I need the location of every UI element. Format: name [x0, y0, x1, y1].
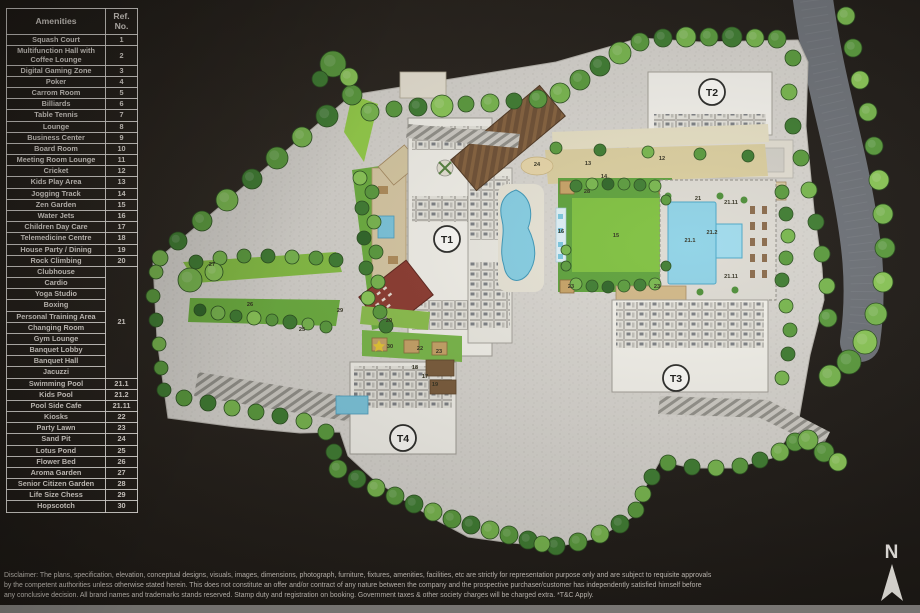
map-ref-label: 21.1 — [685, 238, 696, 244]
amenity-name: Hopscotch — [7, 501, 106, 512]
amenity-row: Table Tennis7 — [7, 110, 138, 121]
tree-icon — [506, 93, 522, 109]
amenity-row: Billiards6 — [7, 99, 138, 110]
amenity-ref: 15 — [106, 199, 138, 210]
tree-icon — [200, 395, 216, 411]
map-ref-label: 28 — [584, 189, 590, 195]
tree-icon — [534, 536, 550, 552]
disclaimer-line-3: any conclusive decision. All brand names… — [4, 591, 810, 601]
amenity-ref: 6 — [106, 99, 138, 110]
tree-icon — [779, 299, 793, 313]
tree-icon — [561, 245, 571, 255]
amenity-name: Banquet Lobby — [7, 345, 106, 356]
tree-icon — [320, 321, 332, 333]
amenity-row: Telemedicine Centre18 — [7, 233, 138, 244]
entrance-pavilion — [400, 72, 446, 98]
north-compass: N — [870, 543, 914, 605]
amenity-ref: 21.11 — [106, 400, 138, 411]
tree-icon — [272, 408, 288, 424]
tree-icon — [793, 150, 809, 166]
amenity-ref: 14 — [106, 188, 138, 199]
tree-icon — [386, 101, 402, 117]
tree-icon — [285, 250, 299, 264]
tree-icon — [373, 305, 387, 319]
amenity-ref: 11 — [106, 155, 138, 166]
amenity-ref: 13 — [106, 177, 138, 188]
amenity-ref-group: 21 — [106, 266, 138, 378]
amenity-row: House Party / Dining19 — [7, 244, 138, 255]
tree-icon — [642, 146, 654, 158]
map-ref-label: 23 — [436, 349, 442, 355]
tree-icon — [661, 261, 671, 271]
amenities-table: Amenities Ref. No. Squash Court1Multifun… — [6, 8, 138, 513]
north-letter: N — [870, 543, 914, 562]
tree-icon — [152, 337, 166, 351]
site-plan-photo: 1213142428161523232121.121.221.1121.1120… — [0, 0, 920, 613]
tree-icon — [644, 469, 660, 485]
tree-icon — [684, 459, 700, 475]
tree-icon — [775, 185, 789, 199]
tree-icon — [550, 142, 562, 154]
amenity-name: Rock Climbing — [7, 255, 106, 266]
t4-annex — [426, 360, 454, 376]
amenity-name: Jogging Track — [7, 188, 106, 199]
amenity-ref: 8 — [106, 121, 138, 132]
photo-edge-strip — [0, 605, 920, 613]
amenity-ref: 24 — [106, 434, 138, 445]
tree-icon — [561, 261, 571, 271]
tree-icon — [248, 404, 264, 420]
amenity-name: Pool Side Cafe — [7, 400, 106, 411]
map-ref-label: 13 — [585, 161, 591, 167]
tree-icon — [149, 313, 163, 327]
north-arrow-icon — [876, 563, 908, 605]
amenity-name: House Party / Dining — [7, 244, 106, 255]
amenity-row: Lotus Pond25 — [7, 445, 138, 456]
amenity-name: Lotus Pond — [7, 445, 106, 456]
tree-icon — [801, 182, 817, 198]
map-ref-label: 14 — [601, 174, 608, 180]
tree-icon — [783, 323, 797, 337]
tree-icon — [224, 400, 240, 416]
tower-label-t1: T1 — [441, 234, 453, 246]
tree-icon — [594, 144, 606, 156]
tree-icon — [283, 315, 297, 329]
amenity-name: Flower Bed — [7, 456, 106, 467]
amenity-ref: 16 — [106, 211, 138, 222]
disclaimer-line-2: by the competent authorities unless othe… — [4, 581, 810, 591]
amenity-row: Board Room10 — [7, 143, 138, 154]
tree-icon — [157, 383, 171, 397]
amenity-row: Sand Pit24 — [7, 434, 138, 445]
amenity-ref: 1 — [106, 35, 138, 46]
tree-icon — [357, 231, 371, 245]
amenity-row: Flower Bed26 — [7, 456, 138, 467]
t4-pool — [336, 396, 368, 414]
tree-icon — [361, 291, 375, 305]
amenity-row: Meeting Room Lounge11 — [7, 155, 138, 166]
tree-icon — [586, 280, 598, 292]
shade-pavilion — [437, 160, 453, 176]
amenity-name: Squash Court — [7, 35, 106, 46]
map-ref-label: 24 — [534, 162, 541, 168]
map-ref-label: 16 — [558, 229, 564, 235]
amenity-name: Poker — [7, 76, 106, 87]
amenity-row: Digital Gaming Zone3 — [7, 65, 138, 76]
tree-icon — [752, 452, 768, 468]
tree-icon — [618, 280, 630, 292]
amenity-name: Sand Pit — [7, 434, 106, 445]
tree-icon — [618, 178, 630, 190]
amenity-name: Cardio — [7, 278, 106, 289]
tree-icon — [634, 179, 646, 191]
amenity-row: Kiosks22 — [7, 412, 138, 423]
map-ref-label: 19 — [432, 382, 438, 388]
amenity-row: Cricket12 — [7, 166, 138, 177]
tree-icon — [635, 486, 651, 502]
map-ref-label: 29 — [337, 308, 343, 314]
amenity-ref: 22 — [106, 412, 138, 423]
amenity-name: Kiosks — [7, 412, 106, 423]
amenities-body: Squash Court1Multifunction Hall with Cof… — [7, 35, 138, 512]
tree-icon — [353, 171, 367, 185]
tree-icon — [649, 180, 661, 192]
tree-icon — [708, 460, 724, 476]
map-ref-label: 21.11 — [724, 200, 738, 206]
tree-icon — [814, 246, 830, 262]
map-ref-label: 26 — [247, 302, 253, 308]
amenity-name: Lounge — [7, 121, 106, 132]
tower-label-t2: T2 — [706, 87, 718, 99]
map-ref-label: 22 — [417, 346, 423, 352]
amenity-name: Kids Pool — [7, 389, 106, 400]
amenity-name: Aroma Garden — [7, 467, 106, 478]
tower-label-t3: T3 — [670, 373, 682, 385]
amenity-ref: 23 — [106, 423, 138, 434]
tree-icon — [570, 180, 582, 192]
amenity-ref: 29 — [106, 490, 138, 501]
map-ref-label: 12 — [659, 156, 665, 162]
amenity-row: Clubhouse21 — [7, 266, 138, 277]
amenity-name: Billiards — [7, 99, 106, 110]
amenity-name: Gym Lounge — [7, 333, 106, 344]
tree-icon — [152, 250, 168, 266]
tree-icon — [808, 214, 824, 230]
amenity-row: Multifunction Hall with Coffee Lounge2 — [7, 46, 138, 65]
amenity-row: Kids Play Area13 — [7, 177, 138, 188]
tree-icon — [149, 265, 163, 279]
tree-icon — [194, 304, 206, 316]
amenity-name: Changing Room — [7, 322, 106, 333]
amenity-row: Kids Pool21.2 — [7, 389, 138, 400]
amenity-name: Boxing — [7, 300, 106, 311]
kids-pool — [716, 224, 742, 258]
amenity-row: Life Size Chess29 — [7, 490, 138, 501]
tree-icon — [261, 249, 275, 263]
amenity-ref: 21.2 — [106, 389, 138, 400]
tree-icon — [602, 281, 614, 293]
tree-icon — [176, 390, 192, 406]
amenity-ref: 18 — [106, 233, 138, 244]
amenity-ref: 2 — [106, 46, 138, 65]
tree-icon — [779, 207, 793, 221]
tree-icon — [312, 71, 328, 87]
tree-icon — [329, 253, 343, 267]
tree-icon — [369, 245, 383, 259]
amenity-row: Squash Court1 — [7, 35, 138, 46]
tree-icon — [775, 371, 789, 385]
amenities-header-row: Amenities Ref. No. — [7, 9, 138, 35]
amenity-name: Kids Play Area — [7, 177, 106, 188]
amenity-ref: 10 — [106, 143, 138, 154]
map-ref-label: 30 — [387, 344, 393, 350]
amenity-row: Poker4 — [7, 76, 138, 87]
tree-icon — [266, 314, 278, 326]
ref-no-header: Ref. No. — [106, 9, 138, 35]
amenity-name: Carrom Room — [7, 88, 106, 99]
amenity-ref: 9 — [106, 132, 138, 143]
amenity-name: Digital Gaming Zone — [7, 65, 106, 76]
tree-icon — [819, 278, 835, 294]
amenity-ref: 4 — [106, 76, 138, 87]
amenity-ref: 7 — [106, 110, 138, 121]
amenity-name: Children Day Care — [7, 222, 106, 233]
tower-label-t4: T4 — [397, 433, 409, 445]
map-ref-label: 23 — [568, 284, 574, 290]
tree-icon — [189, 255, 203, 269]
tree-icon — [628, 502, 644, 518]
amenities-header: Amenities — [7, 9, 106, 35]
amenity-row: Hopscotch30 — [7, 501, 138, 512]
tree-icon — [781, 229, 795, 243]
tree-icon — [371, 275, 385, 289]
tree-icon — [355, 201, 369, 215]
amenity-ref: 19 — [106, 244, 138, 255]
amenity-row: Swimming Pool21.1 — [7, 378, 138, 389]
amenity-ref: 25 — [106, 445, 138, 456]
amenity-ref: 28 — [106, 479, 138, 490]
amenity-ref: 5 — [106, 88, 138, 99]
amenity-name: Personal Training Area — [7, 311, 106, 322]
amenity-name: Telemedicine Centre — [7, 233, 106, 244]
amenity-name: Swimming Pool — [7, 378, 106, 389]
tree-icon — [458, 96, 474, 112]
map-ref-label: 17 — [422, 374, 428, 380]
tree-icon — [318, 424, 334, 440]
tree-icon — [247, 311, 261, 325]
amenity-row: Carrom Room5 — [7, 88, 138, 99]
amenity-name: Business Center — [7, 132, 106, 143]
tree-icon — [211, 306, 225, 320]
map-ref-label: 21 — [695, 196, 701, 202]
amenity-row: Zen Garden15 — [7, 199, 138, 210]
amenity-ref: 3 — [106, 65, 138, 76]
tree-icon — [359, 261, 373, 275]
amenity-ref: 27 — [106, 467, 138, 478]
tree-icon — [367, 215, 381, 229]
amenity-ref: 12 — [106, 166, 138, 177]
amenity-name: Meeting Room Lounge — [7, 155, 106, 166]
amenity-row: Children Day Care17 — [7, 222, 138, 233]
amenity-name: Board Room — [7, 143, 106, 154]
map-ref-label: 23 — [654, 284, 660, 290]
tree-icon — [154, 361, 168, 375]
amenity-row: Water Jets16 — [7, 211, 138, 222]
tree-icon — [785, 118, 801, 134]
amenity-ref: 21.1 — [106, 378, 138, 389]
map-ref-label: 27 — [209, 262, 215, 268]
amenity-name: Senior Citizen Garden — [7, 479, 106, 490]
amenity-row: Lounge8 — [7, 121, 138, 132]
amenity-name: Yoga Studio — [7, 289, 106, 300]
tree-icon — [732, 458, 748, 474]
amenity-row: Business Center9 — [7, 132, 138, 143]
map-ref-label: 25 — [299, 327, 305, 333]
site-plan-map: 1213142428161523232121.121.221.1121.1120… — [0, 0, 920, 613]
amenity-row: Aroma Garden27 — [7, 467, 138, 478]
amenity-name: Water Jets — [7, 211, 106, 222]
amenity-row: Jogging Track14 — [7, 188, 138, 199]
disclaimer-text: Disclaimer: The plans, specification, el… — [4, 571, 810, 602]
tree-icon — [661, 195, 671, 205]
amenity-name: Clubhouse — [7, 266, 106, 277]
tree-icon — [775, 273, 789, 287]
map-ref-label: 20 — [386, 318, 392, 324]
amenity-name: Table Tennis — [7, 110, 106, 121]
amenity-ref: 26 — [106, 456, 138, 467]
amenity-name: Life Size Chess — [7, 490, 106, 501]
tree-icon — [309, 251, 323, 265]
tree-icon — [237, 249, 251, 263]
amenity-ref: 20 — [106, 255, 138, 266]
tree-icon — [779, 251, 793, 265]
amenity-row: Senior Citizen Garden28 — [7, 479, 138, 490]
tree-icon — [694, 148, 706, 160]
amenity-name: Zen Garden — [7, 199, 106, 210]
amenity-ref: 17 — [106, 222, 138, 233]
tree-icon — [365, 185, 379, 199]
map-ref-label: 18 — [412, 365, 418, 371]
map-ref-label: 21.2 — [707, 230, 718, 236]
amenity-name: Party Lawn — [7, 423, 106, 434]
tree-icon — [634, 279, 646, 291]
amenity-row: Party Lawn23 — [7, 423, 138, 434]
tree-icon — [781, 347, 795, 361]
amenity-name: Jacuzzi — [7, 367, 106, 378]
tree-icon — [742, 150, 754, 162]
map-ref-label: 21.11 — [724, 274, 738, 280]
amenity-row: Pool Side Cafe21.11 — [7, 400, 138, 411]
amenity-ref: 30 — [106, 501, 138, 512]
tree-icon — [781, 84, 797, 100]
tree-icon — [326, 444, 342, 460]
tree-icon — [296, 413, 312, 429]
disclaimer-line-1: Disclaimer: The plans, specification, el… — [4, 571, 810, 581]
tree-icon — [660, 455, 676, 471]
tree-icon — [785, 50, 801, 66]
amenity-name: Cricket — [7, 166, 106, 177]
amenity-name: Multifunction Hall with Coffee Lounge — [7, 46, 106, 65]
tree-icon — [230, 310, 242, 322]
amenity-name: Banquet Hall — [7, 356, 106, 367]
map-ref-label: 15 — [613, 233, 619, 239]
tree-icon — [146, 289, 160, 303]
amenity-row: Rock Climbing20 — [7, 255, 138, 266]
